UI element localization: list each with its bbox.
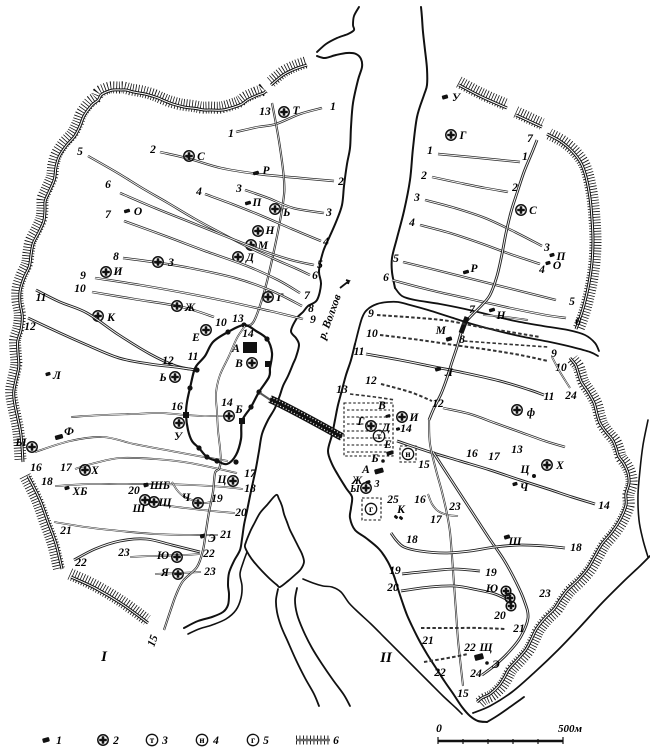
svg-text:4: 4	[538, 264, 545, 276]
svg-text:5: 5	[569, 296, 575, 308]
svg-text:4: 4	[195, 186, 202, 198]
svg-text:14: 14	[598, 500, 610, 512]
svg-text:6: 6	[105, 179, 111, 191]
svg-text:19: 19	[389, 565, 401, 577]
svg-text:1: 1	[427, 145, 433, 157]
svg-text:23: 23	[538, 588, 551, 600]
svg-text:15: 15	[457, 688, 469, 700]
svg-text:В: В	[234, 358, 243, 370]
svg-text:ХБ: ХБ	[72, 486, 88, 498]
svg-text:23: 23	[448, 501, 461, 513]
svg-text:г: г	[251, 735, 255, 745]
svg-text:17: 17	[488, 451, 501, 463]
svg-text:С: С	[197, 151, 205, 163]
svg-text:18: 18	[244, 483, 256, 495]
svg-text:т: т	[377, 431, 382, 441]
svg-text:О: О	[553, 260, 561, 272]
svg-text:14: 14	[242, 328, 254, 340]
svg-text:11: 11	[188, 351, 199, 363]
svg-text:П: П	[252, 197, 263, 209]
svg-text:5: 5	[393, 253, 399, 265]
svg-text:II: II	[379, 650, 393, 666]
svg-text:г: г	[369, 504, 373, 514]
svg-text:5: 5	[263, 735, 269, 747]
svg-text:6: 6	[312, 270, 318, 282]
svg-text:З: З	[167, 257, 174, 269]
svg-text:О: О	[134, 206, 142, 218]
svg-text:16: 16	[30, 462, 42, 474]
svg-text:Ч: Ч	[520, 482, 529, 494]
svg-text:6: 6	[333, 735, 339, 747]
svg-text:Ъ: Ъ	[282, 207, 291, 219]
svg-text:Г: Г	[459, 130, 467, 142]
svg-text:500м: 500м	[558, 723, 583, 735]
svg-text:Ж: Ж	[184, 302, 196, 314]
svg-text:2: 2	[420, 170, 427, 182]
svg-text:Л: Л	[52, 370, 62, 382]
svg-text:22: 22	[463, 642, 476, 654]
svg-text:18: 18	[570, 542, 582, 554]
svg-text:3: 3	[413, 192, 420, 204]
svg-text:20: 20	[127, 485, 140, 497]
svg-text:И: И	[113, 266, 124, 278]
svg-text:ф: ф	[527, 407, 535, 419]
svg-text:11: 11	[544, 391, 555, 403]
svg-text:12: 12	[162, 355, 174, 367]
svg-text:Б: Б	[370, 453, 378, 465]
svg-text:Ц: Ц	[520, 464, 531, 476]
svg-text:Н: Н	[496, 310, 507, 322]
svg-text:10: 10	[215, 317, 227, 329]
svg-text:3: 3	[235, 183, 242, 195]
svg-text:24: 24	[469, 668, 482, 680]
svg-text:Н: Н	[265, 225, 276, 237]
svg-text:20: 20	[493, 610, 506, 622]
svg-text:21: 21	[421, 635, 434, 647]
svg-text:3: 3	[161, 735, 168, 747]
svg-text:22: 22	[74, 557, 87, 569]
svg-text:3: 3	[374, 479, 380, 490]
svg-text:Ш: Ш	[508, 536, 523, 548]
svg-text:К: К	[106, 312, 116, 324]
svg-text:4: 4	[322, 236, 329, 248]
svg-text:4: 4	[212, 735, 219, 747]
svg-text:6: 6	[383, 272, 389, 284]
svg-text:9: 9	[80, 270, 86, 282]
svg-text:19: 19	[485, 567, 497, 579]
svg-text:2: 2	[112, 735, 119, 747]
svg-text:14: 14	[400, 423, 412, 435]
svg-text:Ы: Ы	[349, 484, 360, 495]
svg-text:10: 10	[366, 328, 378, 340]
svg-text:С: С	[529, 205, 537, 217]
svg-text:2: 2	[149, 144, 156, 156]
svg-text:8: 8	[113, 251, 119, 263]
svg-text:21: 21	[512, 623, 525, 635]
svg-text:н: н	[199, 735, 204, 745]
svg-text:17: 17	[244, 468, 257, 480]
svg-text:15: 15	[418, 459, 430, 471]
svg-text:т: т	[150, 735, 155, 745]
svg-text:3: 3	[325, 207, 332, 219]
svg-text:2: 2	[337, 176, 344, 188]
svg-text:1: 1	[330, 101, 336, 113]
svg-text:12: 12	[24, 321, 36, 333]
svg-text:Ш: Ш	[132, 503, 147, 515]
svg-text:5: 5	[77, 146, 83, 158]
svg-text:17: 17	[60, 462, 73, 474]
svg-text:Э: Э	[492, 659, 500, 671]
svg-text:8: 8	[459, 334, 465, 346]
svg-text:Т: Т	[292, 105, 300, 117]
svg-text:13: 13	[511, 444, 523, 456]
svg-text:I: I	[100, 649, 108, 665]
svg-text:Г: Г	[357, 416, 365, 428]
svg-text:5: 5	[317, 259, 323, 271]
svg-text:Ю: Ю	[485, 583, 498, 595]
svg-text:21: 21	[59, 525, 72, 537]
svg-text:6: 6	[575, 316, 581, 328]
svg-text:Ц: Ц	[217, 474, 228, 486]
svg-text:Щ: Щ	[479, 642, 494, 654]
svg-text:4: 4	[408, 217, 415, 229]
svg-text:12: 12	[432, 398, 444, 410]
svg-text:17: 17	[430, 514, 443, 526]
svg-text:16: 16	[466, 448, 478, 460]
svg-text:К: К	[396, 504, 406, 516]
svg-text:22: 22	[433, 667, 446, 679]
svg-text:0: 0	[436, 723, 442, 735]
svg-text:18: 18	[406, 534, 418, 546]
svg-text:Х: Х	[555, 460, 564, 472]
svg-text:1: 1	[56, 735, 62, 747]
svg-text:Ы: Ы	[14, 437, 27, 449]
svg-text:13: 13	[336, 384, 348, 396]
svg-text:Х: Х	[90, 465, 99, 477]
svg-text:А: А	[361, 464, 370, 476]
svg-text:20: 20	[386, 582, 399, 594]
svg-text:Р: Р	[262, 165, 270, 177]
svg-text:13: 13	[259, 106, 271, 118]
svg-text:Щ: Щ	[158, 497, 173, 509]
svg-text:М: М	[435, 325, 447, 337]
svg-text:Е: Е	[383, 439, 392, 451]
svg-text:Ь: Ь	[158, 372, 166, 384]
svg-text:21: 21	[219, 529, 232, 541]
svg-text:Л: Л	[444, 367, 454, 379]
svg-text:3: 3	[543, 242, 550, 254]
svg-text:Я: Я	[160, 567, 170, 579]
svg-text:Ю: Ю	[156, 550, 169, 562]
svg-text:12: 12	[365, 375, 377, 387]
svg-text:9: 9	[310, 314, 316, 326]
svg-text:Э: Э	[208, 533, 216, 545]
svg-text:Ф: Ф	[64, 426, 74, 438]
svg-text:20: 20	[234, 507, 247, 519]
svg-text:Р: Р	[470, 263, 478, 275]
svg-text:23: 23	[117, 547, 130, 559]
svg-text:В: В	[377, 400, 386, 412]
svg-text:1: 1	[228, 128, 234, 140]
svg-text:9: 9	[368, 308, 374, 320]
svg-text:Е: Е	[191, 332, 200, 344]
svg-text:18: 18	[41, 476, 53, 488]
svg-text:Б: Б	[234, 404, 242, 416]
svg-text:Д: Д	[245, 252, 255, 264]
svg-text:Ч: Ч	[182, 492, 191, 504]
svg-text:10: 10	[74, 283, 86, 295]
svg-text:14: 14	[221, 397, 233, 409]
svg-text:11: 11	[354, 346, 365, 358]
svg-text:16: 16	[171, 401, 183, 413]
svg-text:11: 11	[36, 292, 47, 304]
svg-text:н: н	[405, 449, 410, 459]
svg-text:16: 16	[414, 494, 426, 506]
svg-text:23: 23	[203, 566, 216, 578]
svg-text:ШБ: ШБ	[149, 480, 170, 492]
svg-text:24: 24	[564, 390, 577, 402]
